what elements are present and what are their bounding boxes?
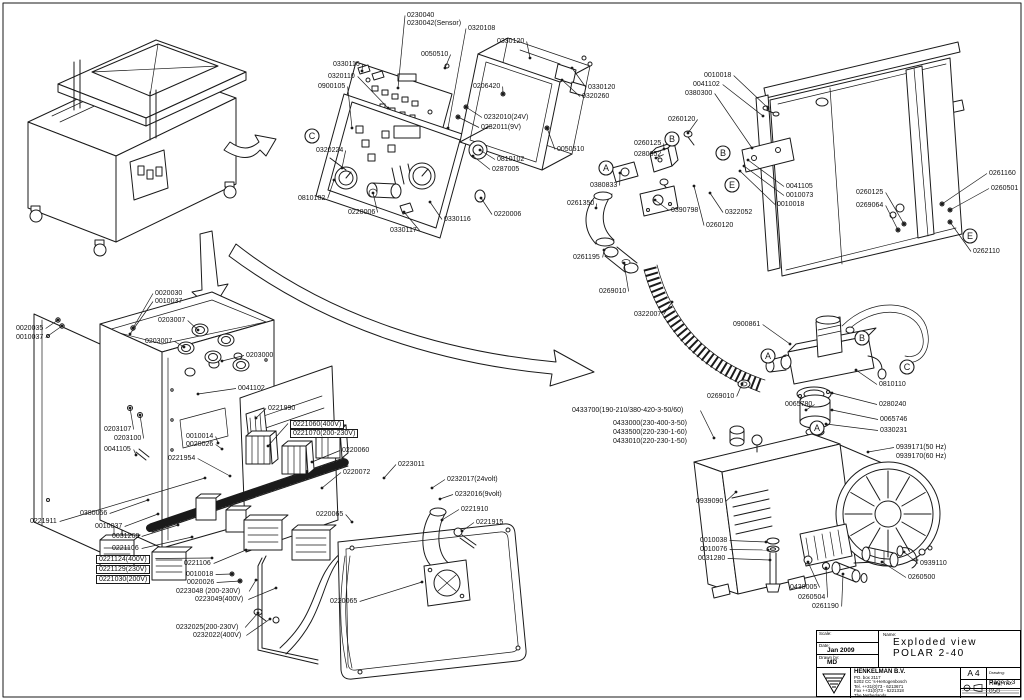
title-block-meta: Scale: Date: Jan 2009 Drawn by: MD <box>817 631 879 667</box>
title-block: Scale: Date: Jan 2009 Drawn by: MD Name:… <box>816 630 1021 697</box>
date-cell: Date: Jan 2009 <box>817 643 878 655</box>
electrical-box-art <box>34 292 348 623</box>
detail-marker-a: A <box>810 421 824 435</box>
frame-panels-art <box>586 42 964 276</box>
fine-print <box>962 690 1019 695</box>
exploded-view-page: CABBEEABCA 02300400230042(Sensor)0320108… <box>0 0 1024 700</box>
drawn-by-value: MD <box>819 660 878 666</box>
svg-text:E: E <box>729 180 735 190</box>
hoses-art <box>644 265 765 392</box>
drawing-label: Drawing: <box>989 670 1005 675</box>
svg-text:E: E <box>967 231 973 241</box>
detail-marker-c: C <box>305 129 319 143</box>
detail-marker-c: C <box>900 360 914 374</box>
scale-cell: Scale: <box>817 631 878 643</box>
detail-marker-b: B <box>855 331 869 345</box>
drawn-by-cell: Drawn by: MD <box>817 655 878 667</box>
svg-text:A: A <box>765 351 771 361</box>
machine-overview-art <box>28 40 246 256</box>
detail-marker-a: A <box>761 349 775 363</box>
svg-text:B: B <box>859 333 865 343</box>
company-address: HENKELMAN B.V. PO. box 2117 5202 CC 's-H… <box>851 668 961 698</box>
henkelman-logo-icon <box>822 671 846 695</box>
exploded-view-drawing: CABBEEABCA <box>0 0 1024 700</box>
drawing-title-line2: POLAR 2-40 <box>883 648 1020 659</box>
valve-assembly-art <box>766 305 928 445</box>
detail-marker-a: A <box>599 161 613 175</box>
svg-text:A: A <box>603 163 609 173</box>
svg-text:B: B <box>720 148 726 158</box>
drawing-name-cell: Name: Exploded view POLAR 2-40 <box>879 631 1020 667</box>
drawing-title-line1: Exploded view <box>883 637 1020 648</box>
scale-label: Scale: <box>819 631 878 636</box>
date-value: Jan 2009 <box>819 648 878 654</box>
company-country: The Netherlands <box>854 694 960 699</box>
svg-text:C: C <box>904 362 911 372</box>
svg-text:A: A <box>814 423 820 433</box>
detail-marker-b: B <box>716 146 730 160</box>
detail-marker-b: B <box>665 132 679 146</box>
detail-marker-e: E <box>963 229 977 243</box>
svg-text:C: C <box>309 131 316 141</box>
vacuum-pump-art <box>694 426 940 598</box>
detail-marker-e: E <box>725 178 739 192</box>
company-logo <box>817 668 851 698</box>
svg-text:B: B <box>669 134 675 144</box>
